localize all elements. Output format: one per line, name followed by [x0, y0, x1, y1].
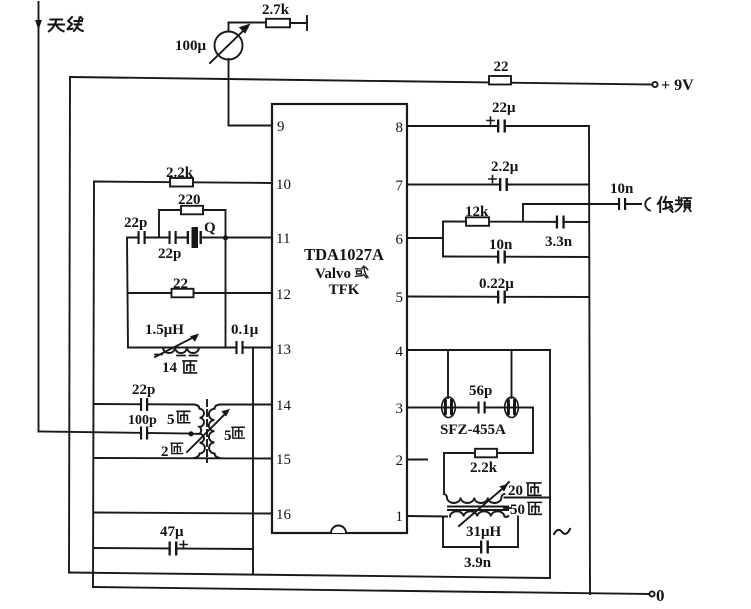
svg-text:22: 22	[494, 59, 509, 75]
svg-text:31μH: 31μH	[466, 524, 502, 540]
svg-text:14: 14	[276, 398, 292, 414]
svg-text:TFK: TFK	[329, 282, 360, 298]
svg-text:11: 11	[276, 231, 290, 247]
svg-text:SFZ-455A: SFZ-455A	[440, 422, 506, 438]
svg-text:2.2μ: 2.2μ	[491, 159, 519, 175]
svg-text:22: 22	[173, 276, 188, 292]
svg-text:Q: Q	[204, 220, 216, 236]
svg-text:0.1μ: 0.1μ	[231, 322, 259, 338]
svg-text:3: 3	[396, 401, 404, 417]
svg-text:47μ: 47μ	[160, 524, 184, 540]
svg-text:5: 5	[224, 428, 232, 444]
svg-text:4: 4	[396, 344, 404, 360]
svg-text:3.9n: 3.9n	[464, 555, 492, 571]
svg-text:22p: 22p	[158, 246, 181, 262]
svg-text:2.2k: 2.2k	[470, 460, 498, 476]
svg-text:1: 1	[396, 509, 404, 525]
svg-text:100p: 100p	[128, 413, 157, 428]
svg-text:Valvo: Valvo	[315, 266, 351, 282]
svg-text:20: 20	[508, 483, 523, 499]
svg-text:0: 0	[656, 586, 665, 605]
svg-text:1.5μH: 1.5μH	[145, 322, 184, 338]
svg-text:56p: 56p	[469, 383, 492, 399]
svg-text:6: 6	[396, 232, 404, 248]
svg-text:22μ: 22μ	[492, 100, 516, 116]
svg-text:13: 13	[276, 342, 291, 358]
svg-text:12k: 12k	[465, 204, 489, 220]
svg-text:100μ: 100μ	[175, 38, 207, 54]
svg-text:15: 15	[276, 452, 291, 468]
svg-text:220: 220	[178, 192, 201, 208]
svg-text:2.2k: 2.2k	[166, 165, 194, 181]
svg-text:10n: 10n	[610, 181, 634, 197]
svg-text:7: 7	[396, 178, 404, 194]
svg-text:10: 10	[276, 177, 291, 193]
svg-text:16: 16	[276, 507, 292, 523]
svg-text:3.3n: 3.3n	[545, 234, 573, 250]
svg-text:TDA1027A: TDA1027A	[304, 245, 384, 264]
svg-text:0.22μ: 0.22μ	[479, 276, 514, 292]
svg-text:8: 8	[396, 120, 404, 136]
svg-text:14: 14	[162, 360, 178, 376]
svg-text:2.7k: 2.7k	[262, 2, 290, 18]
svg-text:5: 5	[396, 290, 404, 306]
svg-text:+ 9V: + 9V	[661, 77, 694, 94]
svg-text:9: 9	[277, 119, 285, 135]
svg-text:22p: 22p	[124, 215, 147, 231]
svg-text:10n: 10n	[489, 237, 513, 253]
svg-text:12: 12	[276, 287, 291, 303]
svg-text:5: 5	[167, 412, 175, 428]
svg-text:22p: 22p	[132, 382, 155, 398]
svg-text:2: 2	[396, 453, 404, 469]
